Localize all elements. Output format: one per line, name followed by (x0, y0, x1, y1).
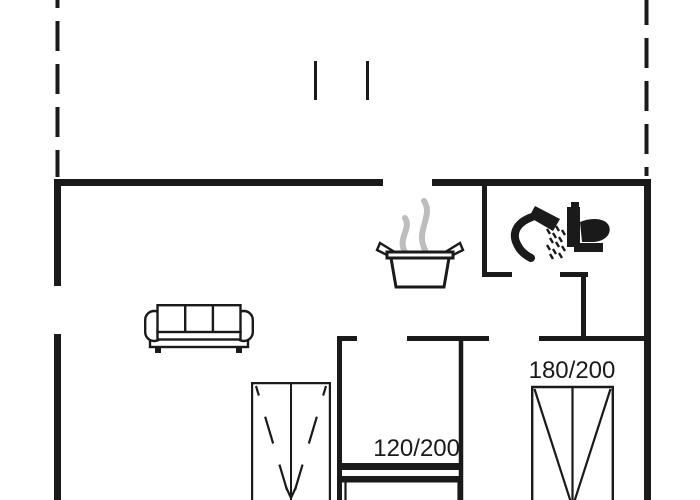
double-bed-size-label: 180/200 (522, 359, 622, 383)
double-bed-icon (532, 387, 613, 500)
toilet-icon (567, 202, 610, 252)
single-bed-icon (342, 463, 462, 500)
wardrobe-icon (252, 383, 330, 500)
single-bed-size-label: 120/200 (352, 437, 460, 461)
floor-plan: 180/200 120/200 (0, 0, 700, 500)
steam-icon (403, 201, 427, 252)
terrace-markings (58, 0, 647, 177)
cooking-pot-icon (377, 201, 463, 287)
sofa-icon (145, 305, 253, 353)
shower-icon (515, 206, 565, 259)
floor-plan-drawing (0, 0, 700, 500)
